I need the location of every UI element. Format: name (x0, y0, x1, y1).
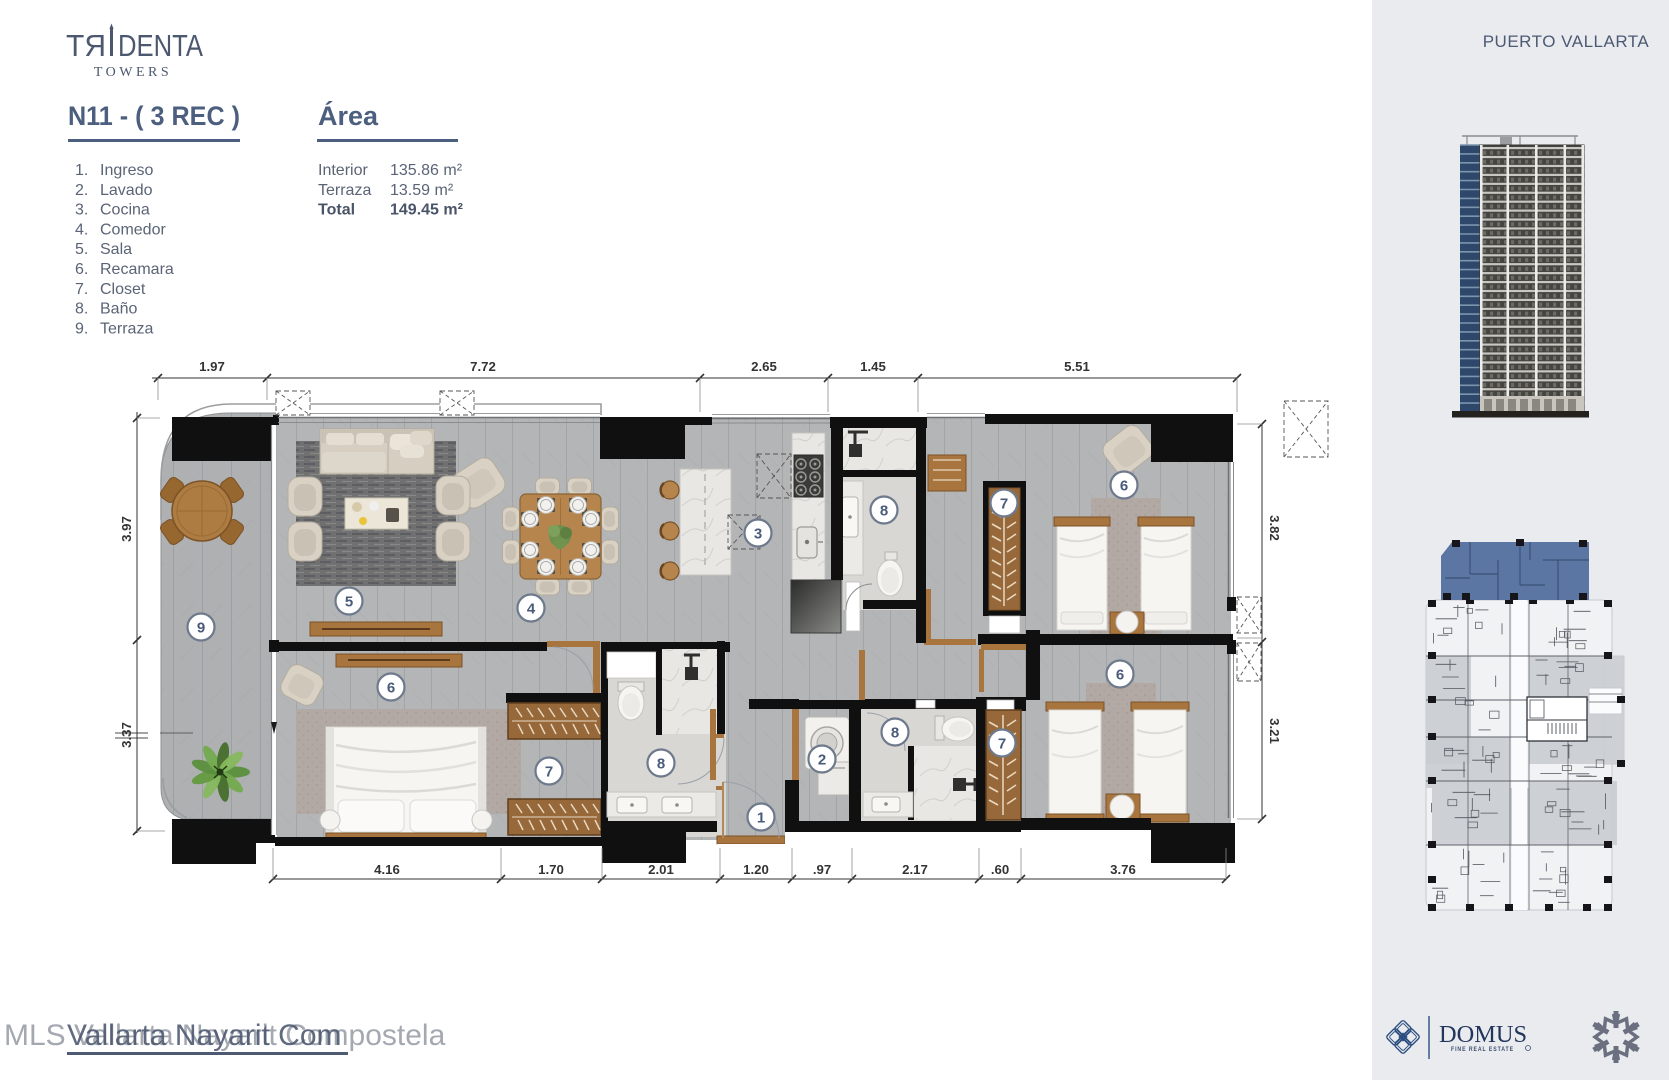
svg-text:Terraza: Terraza (100, 320, 153, 337)
svg-text:3.: 3. (75, 202, 88, 219)
svg-text:135.86 m²: 135.86 m² (390, 162, 463, 179)
svg-text:7: 7 (998, 736, 1006, 753)
svg-text:TЯ: TЯ (66, 28, 106, 63)
svg-text:Recamara: Recamara (100, 261, 174, 278)
svg-text:2: 2 (818, 752, 826, 769)
svg-text:3.21: 3.21 (1267, 718, 1282, 744)
svg-text:1: 1 (757, 810, 765, 827)
svg-text:PUERTO VALLARTA: PUERTO VALLARTA (1483, 32, 1650, 51)
svg-text:Baño: Baño (100, 301, 137, 318)
svg-text:9: 9 (197, 620, 205, 637)
svg-text:6: 6 (387, 680, 395, 697)
svg-text:149.45 m²: 149.45 m² (390, 202, 463, 219)
svg-text:Interior: Interior (318, 162, 368, 179)
svg-text:6: 6 (1116, 667, 1124, 684)
svg-text:Área: Área (318, 100, 379, 131)
svg-text:2.: 2. (75, 182, 88, 199)
svg-text:1.20: 1.20 (743, 862, 769, 877)
svg-text:8: 8 (657, 756, 665, 773)
svg-text:7.: 7. (75, 281, 88, 298)
svg-text:13.59 m²: 13.59 m² (390, 182, 454, 199)
svg-text:3.82: 3.82 (1267, 515, 1282, 541)
svg-text:6: 6 (1120, 478, 1128, 495)
svg-text:4.: 4. (75, 221, 88, 238)
svg-text:1.45: 1.45 (860, 359, 886, 374)
svg-text:7: 7 (545, 764, 553, 781)
svg-text:6.: 6. (75, 261, 88, 278)
svg-text:Lavado: Lavado (100, 182, 153, 199)
svg-text:1.: 1. (75, 162, 88, 179)
svg-text:7: 7 (1000, 496, 1008, 513)
svg-text:Cocina: Cocina (100, 202, 150, 219)
svg-text:3: 3 (754, 526, 762, 543)
svg-text:8: 8 (891, 725, 899, 742)
svg-text:9.: 9. (75, 320, 88, 337)
svg-text:FINE REAL ESTATE: FINE REAL ESTATE (1451, 1046, 1514, 1053)
svg-text:1.70: 1.70 (538, 862, 564, 877)
svg-text:2.17: 2.17 (902, 862, 928, 877)
svg-text:2.01: 2.01 (648, 862, 674, 877)
svg-text:Closet: Closet (100, 281, 146, 298)
svg-text:2.65: 2.65 (751, 359, 777, 374)
svg-text:4: 4 (527, 601, 536, 618)
svg-text:Terraza: Terraza (318, 182, 371, 199)
svg-text:8.: 8. (75, 301, 88, 318)
svg-text:.97: .97 (813, 862, 831, 877)
svg-text:Total: Total (318, 202, 355, 219)
svg-text:5.51: 5.51 (1064, 359, 1090, 374)
svg-text:Comedor: Comedor (100, 221, 166, 238)
svg-text:3.97: 3.97 (119, 516, 134, 542)
svg-text:Ingreso: Ingreso (100, 162, 153, 179)
svg-text:4.16: 4.16 (374, 862, 400, 877)
svg-text:N11 - ( 3 REC ): N11 - ( 3 REC ) (68, 101, 240, 131)
svg-text:7.72: 7.72 (470, 359, 496, 374)
svg-text:Vallarta Nayarit Com: Vallarta Nayarit Com (67, 1019, 342, 1052)
svg-text:3.37: 3.37 (119, 722, 134, 748)
svg-text:.60: .60 (991, 862, 1009, 877)
svg-text:5: 5 (345, 594, 353, 611)
svg-text:TOWERS: TOWERS (94, 65, 172, 80)
svg-text:DOMUS: DOMUS (1439, 1022, 1527, 1048)
svg-text:Sala: Sala (100, 241, 132, 258)
svg-text:1.97: 1.97 (199, 359, 225, 374)
svg-text:5.: 5. (75, 241, 88, 258)
svg-text:8: 8 (880, 503, 888, 520)
svg-text:3.76: 3.76 (1110, 862, 1136, 877)
svg-text:DENTA: DENTA (118, 28, 203, 63)
